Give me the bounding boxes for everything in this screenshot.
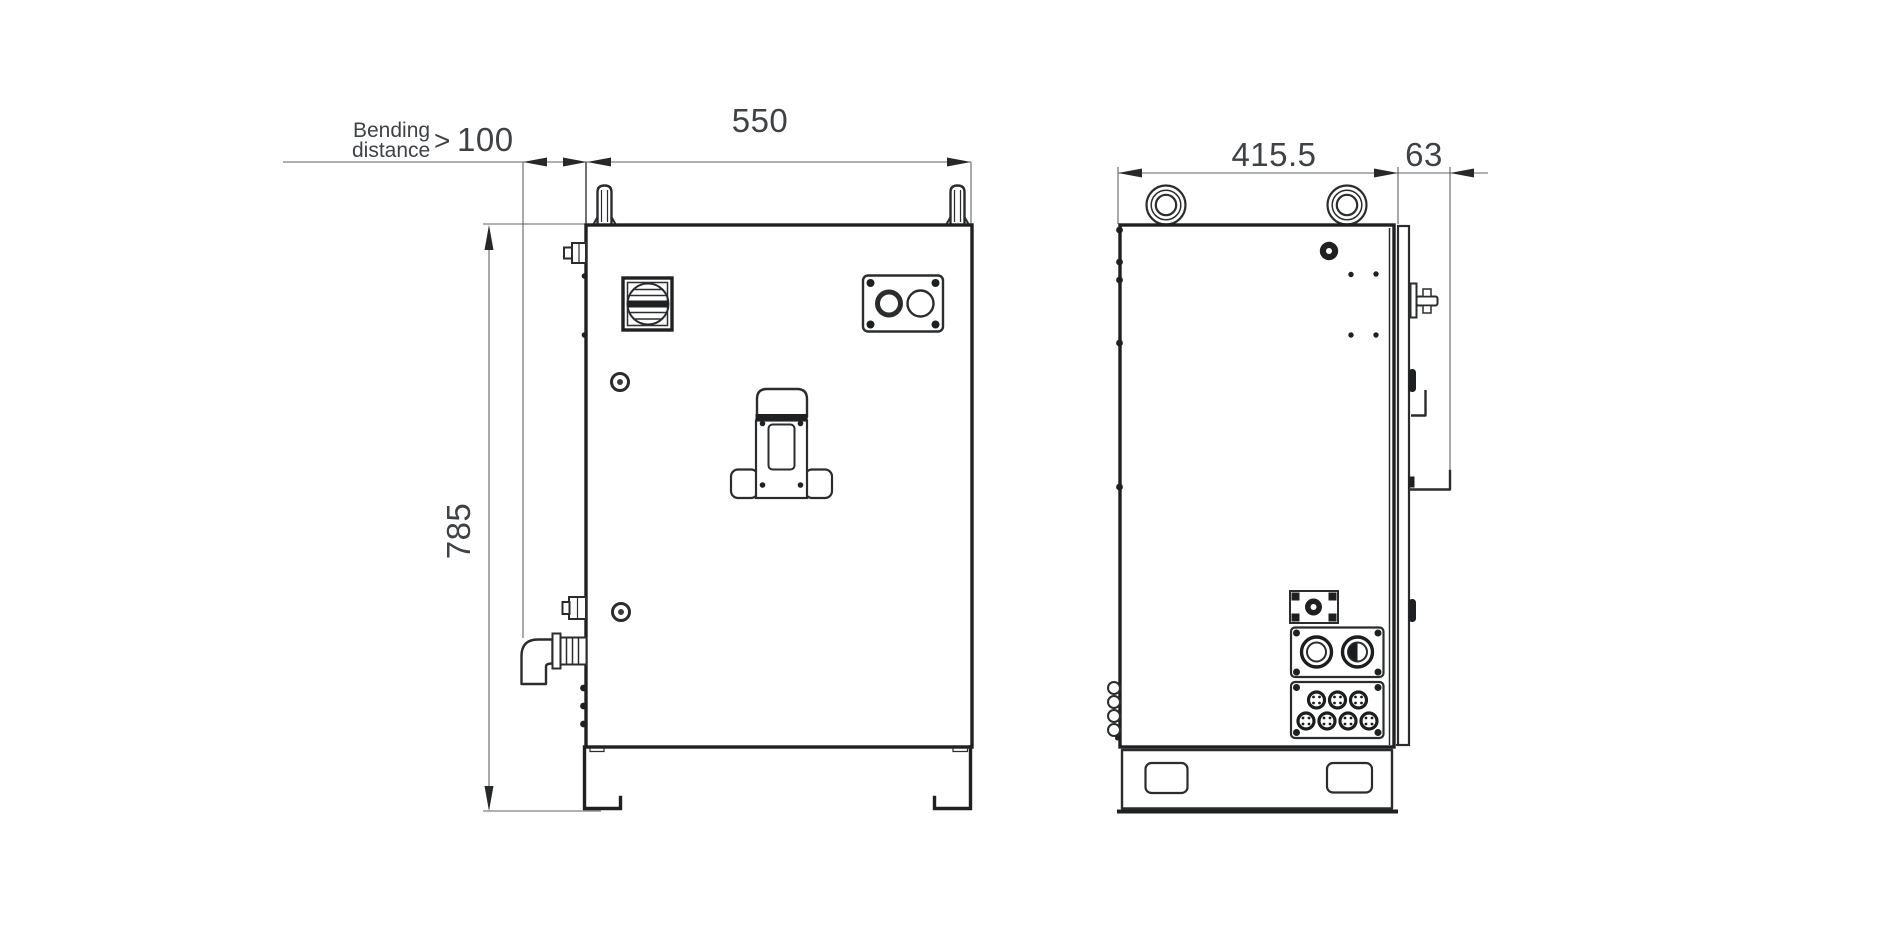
handle-screw	[798, 421, 804, 427]
panel-screw	[1293, 669, 1300, 676]
arrowhead	[523, 158, 547, 167]
drill-dot	[1373, 332, 1378, 337]
bending-min-value: 100	[457, 121, 514, 158]
door-lock-bottom	[613, 604, 630, 621]
conduit-elbow	[522, 634, 587, 685]
arrowhead	[587, 158, 611, 167]
panel-screw	[1375, 669, 1382, 676]
hinge-nub	[580, 721, 587, 728]
handle-cap	[757, 389, 807, 417]
front-view: Bending distance > 100 550 785	[283, 102, 972, 811]
lifting-pin-left	[593, 186, 616, 226]
gland-tip	[563, 602, 570, 614]
panel-screw	[1375, 684, 1382, 691]
bolt-hole-center	[1326, 248, 1332, 254]
side-depth-value: 415.5	[1231, 136, 1316, 173]
plinth-body	[1122, 750, 1392, 809]
cable-gland-top	[564, 243, 586, 263]
drill-dot	[1348, 272, 1353, 277]
technical-drawing-page: Bending distance > 100 550 785	[0, 0, 1890, 928]
hinge-nub	[580, 703, 587, 710]
panel-screw	[1293, 684, 1300, 691]
lifting-pin-right	[946, 186, 969, 226]
handle-screw	[798, 482, 804, 488]
ground-wire-coil	[1108, 682, 1120, 741]
handle-prong-top	[1423, 289, 1431, 297]
lock-cam-upper	[1409, 369, 1417, 392]
arrowhead	[485, 225, 494, 250]
panel-screw	[867, 321, 875, 329]
side-view: 415.5 63	[1108, 136, 1488, 812]
handle-prong-bottom	[1423, 306, 1431, 314]
panel-screw	[1293, 729, 1300, 736]
coupling-body	[561, 638, 587, 665]
lifting-ring-left	[1147, 186, 1186, 225]
pin-body	[598, 186, 612, 226]
panel-screw	[867, 279, 875, 287]
elbow-pipe	[522, 640, 553, 685]
arrowhead	[947, 158, 971, 167]
foot-right	[935, 747, 971, 809]
pin-body	[951, 186, 965, 226]
door-lock-top	[612, 374, 629, 391]
front-feet	[585, 747, 971, 809]
multi-connector-panel	[1291, 682, 1384, 738]
latch-bracket-bottom	[1409, 470, 1451, 490]
corner-block	[1292, 593, 1300, 601]
drill-dot	[1348, 332, 1353, 337]
main-switch	[623, 278, 672, 330]
panel-screw	[1375, 630, 1382, 637]
round-connector-panel	[1291, 628, 1384, 678]
front-height-value: 785	[440, 503, 477, 560]
hinge-nub	[1116, 277, 1123, 284]
arrowhead	[1450, 169, 1474, 178]
ring-outer	[1328, 186, 1367, 225]
hinge-nub	[582, 332, 588, 338]
pushbutton-panel	[863, 276, 943, 332]
lock-core	[618, 609, 624, 615]
coil-loop	[1108, 682, 1120, 694]
arrowhead	[1374, 169, 1398, 178]
lock-core	[617, 379, 623, 385]
hinge-nub	[582, 273, 588, 279]
panel-screw	[1375, 729, 1382, 736]
hinge-nub	[1116, 227, 1123, 234]
hinge-nub	[1116, 484, 1123, 491]
corner-block	[1292, 614, 1300, 622]
bending-operator: >	[434, 125, 450, 156]
bending-note-line2: distance	[352, 139, 430, 162]
handle-grip-bar	[756, 414, 808, 421]
foot-left	[585, 747, 621, 809]
coil-loop	[1108, 724, 1120, 736]
arrowhead	[1118, 169, 1142, 178]
handle-foot-right	[805, 470, 832, 499]
handle-screw	[760, 482, 766, 488]
arrowhead	[485, 786, 494, 811]
coil-loop	[1108, 696, 1120, 708]
coil-loop	[1108, 710, 1120, 722]
handle-screw	[760, 421, 766, 427]
side-door-panel	[1398, 226, 1409, 745]
hinge-nub	[580, 685, 587, 692]
handle-foot-left	[731, 470, 758, 499]
cable-gland-lower	[563, 597, 587, 619]
front-width-value: 550	[732, 102, 789, 139]
corner-block	[1329, 593, 1337, 601]
switch-handle-bar	[628, 301, 669, 308]
side-handle-profile	[1411, 284, 1438, 318]
hinge-nub	[1116, 340, 1123, 347]
arrowhead	[563, 158, 587, 167]
latch-outline	[1410, 470, 1450, 490]
lock-cam-lower	[1409, 599, 1417, 622]
handle-arm-profile	[1417, 297, 1438, 306]
side-door-offset-value: 63	[1405, 136, 1443, 173]
gland-tip	[564, 248, 572, 259]
lock-bracket-upper	[1411, 390, 1426, 416]
cabinet-dimension-drawing: Bending distance > 100 550 785	[0, 0, 1890, 928]
ring-outer	[1147, 186, 1186, 225]
lifting-ring-right	[1328, 186, 1367, 225]
panel-screw	[932, 321, 940, 329]
panel-plate	[1291, 628, 1384, 678]
corner-block	[1329, 614, 1337, 622]
drill-dot	[1373, 271, 1378, 276]
latch-nub	[1409, 477, 1415, 488]
panel-screw	[1293, 630, 1300, 637]
side-base-plinth	[1119, 750, 1396, 812]
coil-end	[1115, 736, 1120, 741]
coupling-flange	[553, 634, 561, 669]
panel-screw	[932, 279, 940, 287]
small-connector	[1290, 591, 1338, 623]
connector-center	[1311, 604, 1317, 610]
hinge-nub	[1116, 259, 1123, 266]
